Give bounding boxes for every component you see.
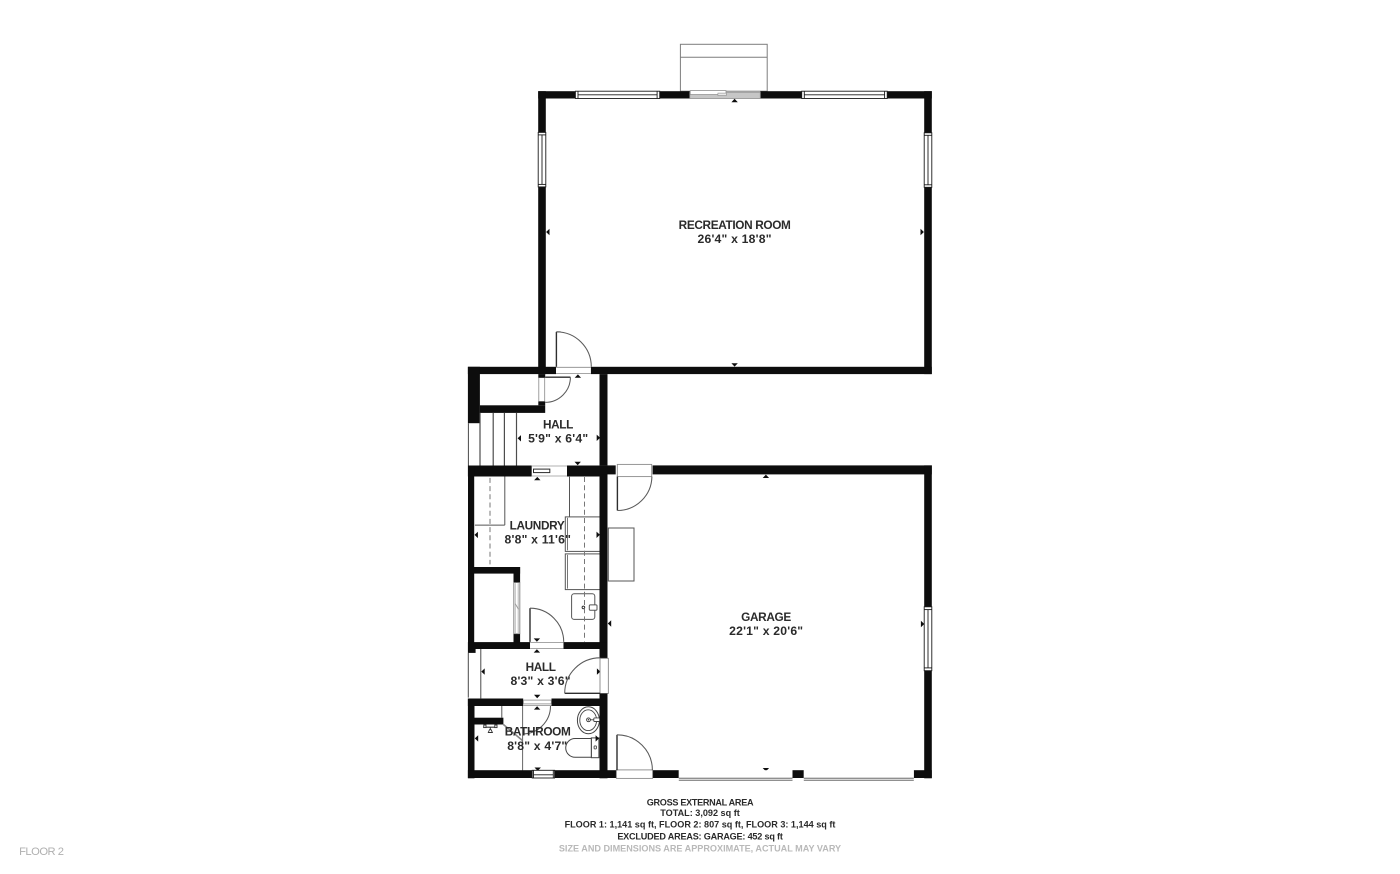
svg-text:RECREATION ROOM: RECREATION ROOM xyxy=(679,218,791,232)
svg-text:HALL: HALL xyxy=(526,660,556,674)
svg-text:GROSS EXTERNAL AREA: GROSS EXTERNAL AREA xyxy=(647,798,754,808)
svg-text:LAUNDRY: LAUNDRY xyxy=(510,518,565,532)
svg-text:FLOOR 2: FLOOR 2 xyxy=(19,846,64,858)
svg-text:TOTAL: 3,092 sq ft: TOTAL: 3,092 sq ft xyxy=(660,808,740,818)
svg-text:GARAGE: GARAGE xyxy=(741,610,791,624)
svg-text:SIZE AND DIMENSIONS ARE APPROX: SIZE AND DIMENSIONS ARE APPROXIMATE, ACT… xyxy=(559,843,841,853)
svg-text:5'9" x 6'4": 5'9" x 6'4" xyxy=(528,432,588,446)
svg-text:26'4" x 18'8": 26'4" x 18'8" xyxy=(698,232,772,246)
svg-text:BATHROOM: BATHROOM xyxy=(505,725,571,739)
svg-text:8'8" x 11'6": 8'8" x 11'6" xyxy=(505,533,572,547)
svg-text:22'1" x 20'6": 22'1" x 20'6" xyxy=(729,624,803,638)
svg-text:8'3" x 3'6": 8'3" x 3'6" xyxy=(510,674,570,688)
svg-text:FLOOR 1: 1,141 sq ft, FLOOR 2:: FLOOR 1: 1,141 sq ft, FLOOR 2: 807 sq ft… xyxy=(565,820,836,830)
svg-text:EXCLUDED AREAS: GARAGE: 452 sq: EXCLUDED AREAS: GARAGE: 452 sq ft xyxy=(617,831,783,841)
svg-text:8'8" x 4'7": 8'8" x 4'7" xyxy=(507,739,567,753)
svg-text:HALL: HALL xyxy=(543,417,573,431)
